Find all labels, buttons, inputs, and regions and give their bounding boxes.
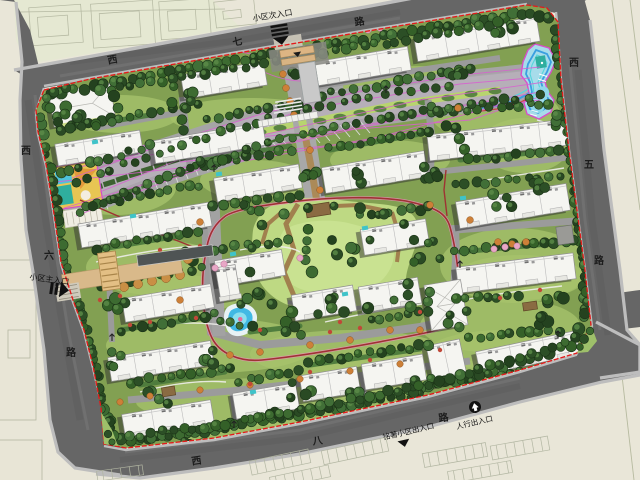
svg-text:路: 路 — [594, 254, 605, 267]
svg-text:西: 西 — [107, 53, 119, 67]
svg-text:六: 六 — [44, 249, 54, 262]
svg-text:西: 西 — [21, 145, 31, 157]
svg-text:路: 路 — [66, 346, 77, 359]
svg-text:西: 西 — [569, 57, 579, 69]
svg-text:西: 西 — [191, 454, 203, 467]
svg-text:五: 五 — [584, 159, 594, 171]
